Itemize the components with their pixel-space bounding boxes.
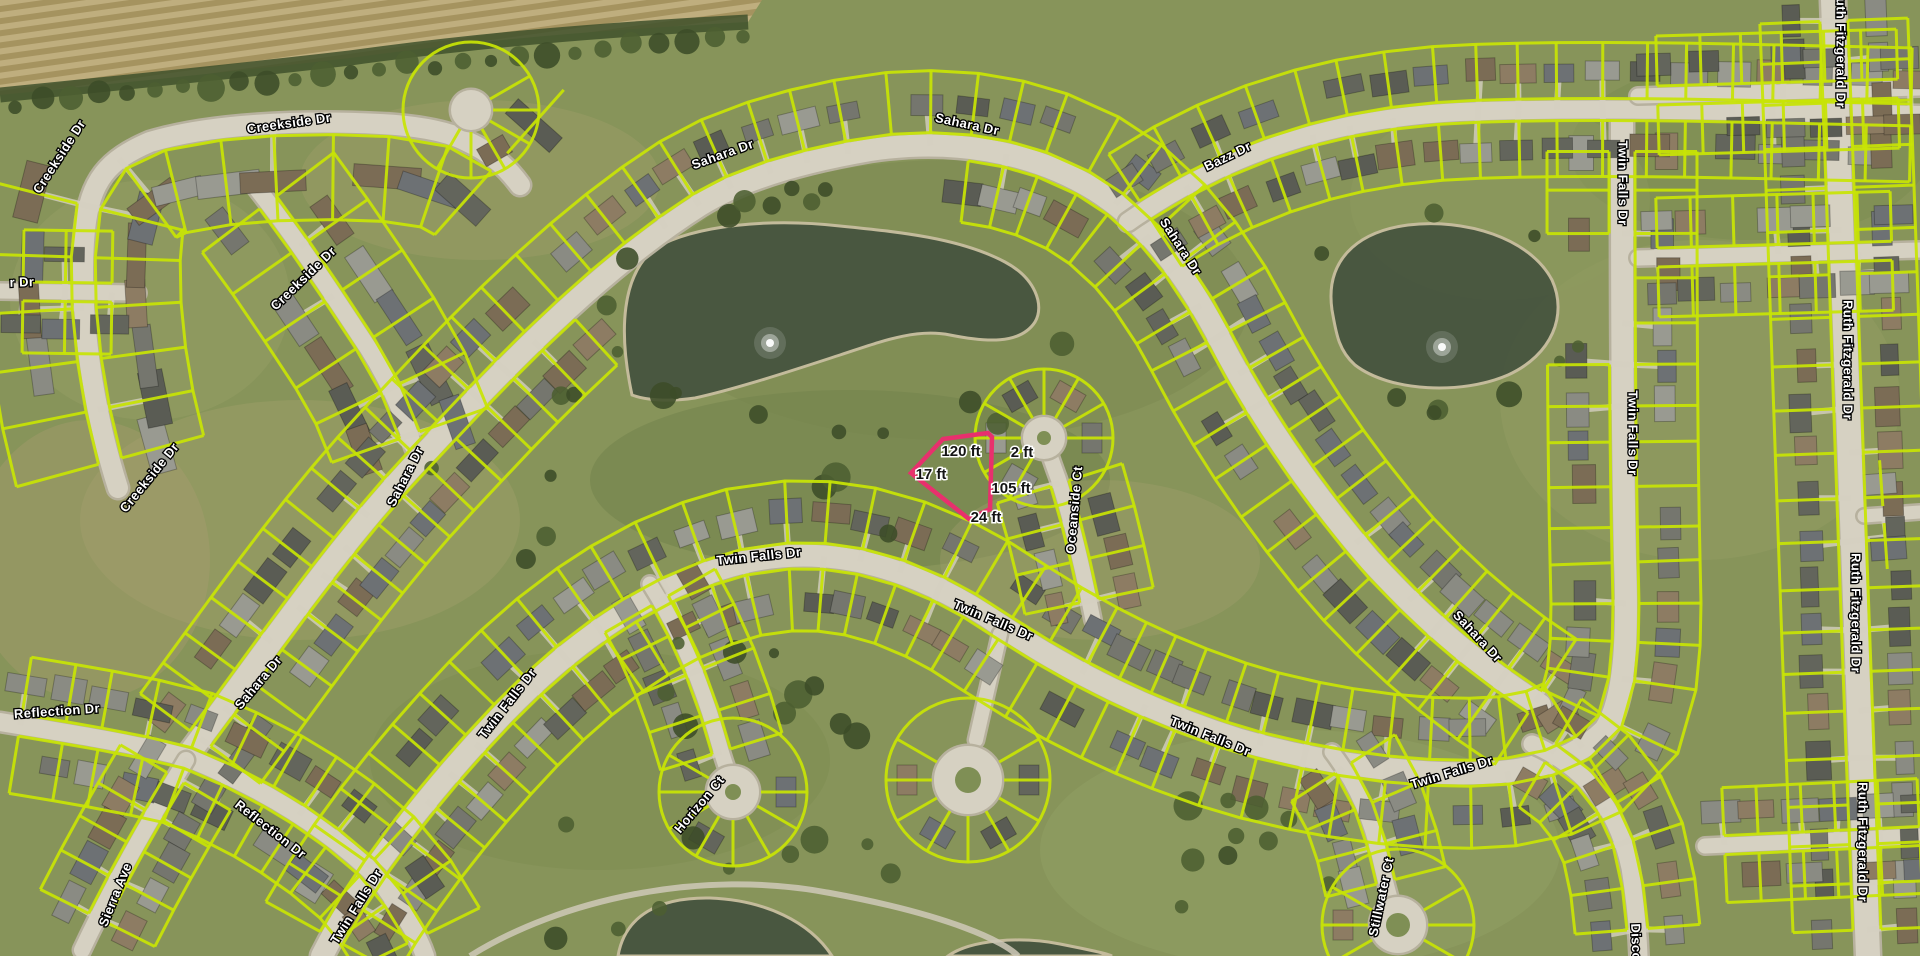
street-label: Discovery Dr — [1628, 923, 1646, 956]
street-label: Ruth Fitzgerald Dr — [1856, 782, 1871, 902]
street-label: Twin Falls Dr — [1626, 390, 1641, 475]
street-label: Ruth Fitzgerald Dr — [1834, 0, 1849, 108]
parcel-dimension-label: 2 ft — [1011, 444, 1034, 461]
aerial-map-canvas[interactable]: Creekside DrCreekside DrCreekside DrCree… — [0, 0, 1920, 956]
street-label: Twin Falls Dr — [1616, 140, 1631, 225]
street-label: Ruth Fitzgerald Dr — [1849, 553, 1864, 673]
parcel-dimension-label: 24 ft — [971, 509, 1002, 526]
street-label: r Dr — [9, 274, 34, 290]
parcel-dimension-label: 17 ft — [916, 466, 947, 483]
parcel-dimension-label: 120 ft — [941, 443, 980, 460]
parcel-dimension-label: 105 ft — [991, 480, 1030, 497]
street-label: Ruth Fitzgerald Dr — [1841, 300, 1856, 420]
map-viewport[interactable]: Creekside DrCreekside DrCreekside DrCree… — [0, 0, 1920, 956]
